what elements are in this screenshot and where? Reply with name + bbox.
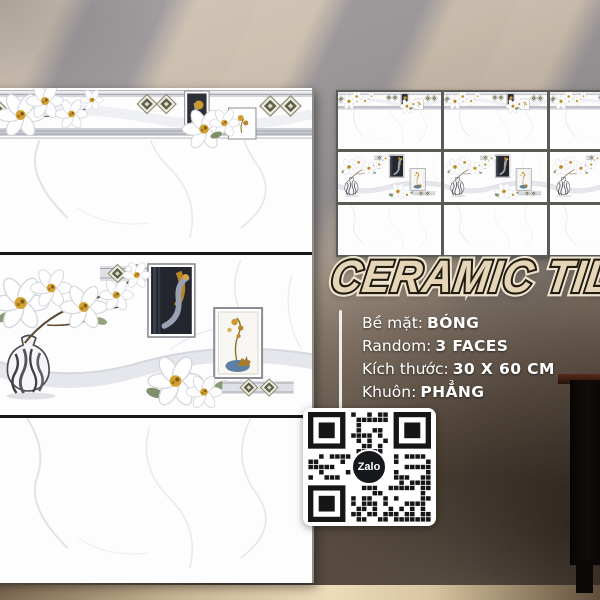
spec-row-random: Random:3 FACES — [362, 335, 555, 358]
wood-floor-strip — [0, 585, 600, 600]
tile-sample-border — [0, 88, 312, 252]
spec-value: 30 X 60 CM — [453, 360, 555, 378]
tile-preview-main — [444, 152, 547, 202]
tile-preview-plain — [444, 205, 547, 255]
tile-border-artwork — [0, 88, 312, 252]
spec-value: 3 FACES — [435, 337, 508, 355]
spec-list: Bề mặt:BÓNG Random:3 FACES Kích thước:30… — [362, 312, 555, 404]
tile-sample-main — [0, 255, 312, 415]
tile-preview-border — [338, 92, 441, 149]
table-silhouette — [570, 380, 600, 565]
spec-value: PHẲNG — [420, 383, 484, 401]
table-leg — [576, 560, 593, 593]
zalo-logo-label: Zalo — [358, 461, 381, 473]
tile-preview-grid — [336, 90, 600, 257]
tile-main-artwork — [0, 255, 312, 415]
zalo-logo: Zalo — [351, 449, 387, 485]
spec-value: BÓNG — [427, 314, 479, 332]
tile-preview-plain — [338, 205, 441, 255]
tile-preview-border — [550, 92, 600, 149]
tile-panel-large — [0, 88, 314, 583]
spec-label: Bề mặt: — [362, 314, 423, 332]
tile-preview-main — [550, 152, 600, 202]
tile-advertisement-poster: CERAMIC TILE CERAMIC TILE CERAMIC TILE B… — [0, 0, 600, 600]
zalo-qr-code: Zalo — [303, 408, 436, 526]
spec-row-surface: Bề mặt:BÓNG — [362, 312, 555, 335]
tile-preview-border — [444, 92, 547, 149]
spec-label: Khuôn: — [362, 383, 416, 401]
spec-row-mold: Khuôn:PHẲNG — [362, 381, 555, 404]
spec-label: Random: — [362, 337, 431, 355]
spec-label: Kích thước: — [362, 360, 449, 378]
tile-preview-plain — [550, 205, 600, 255]
tile-preview-main — [338, 152, 441, 202]
specs-accent-bar — [339, 310, 342, 416]
spec-row-size: Kích thước:30 X 60 CM — [362, 358, 555, 381]
tile-sample-plain — [0, 418, 312, 583]
tile-plain-artwork — [0, 418, 312, 583]
